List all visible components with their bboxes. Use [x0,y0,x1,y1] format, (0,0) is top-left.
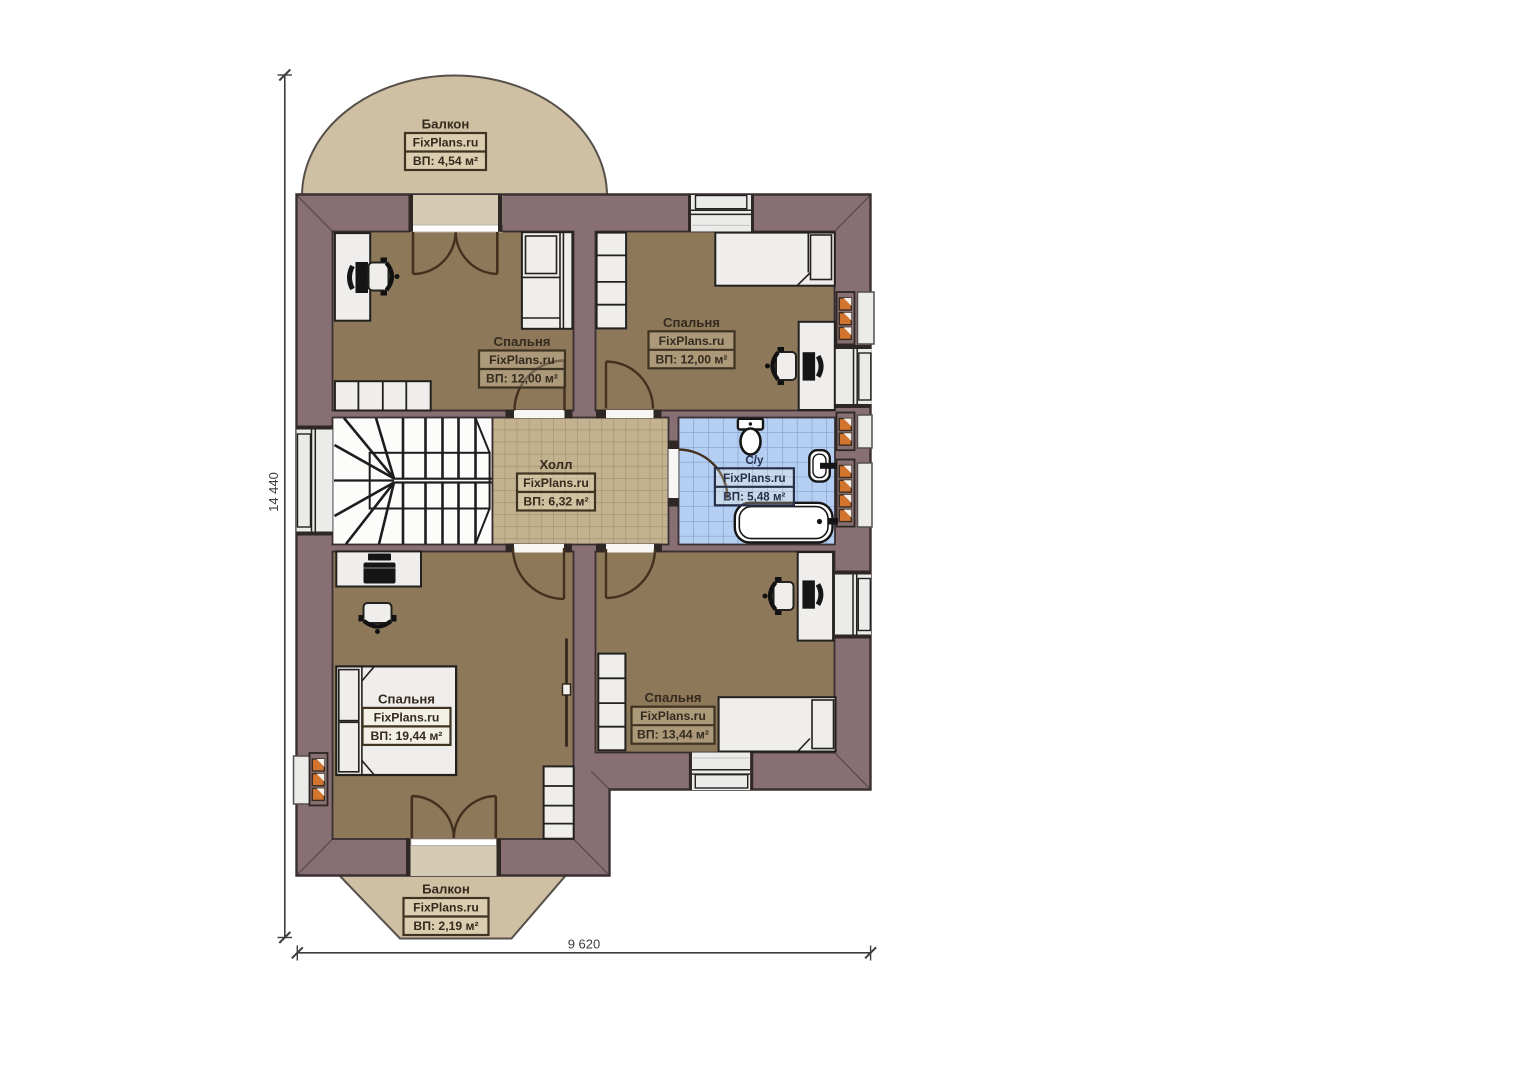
svg-text:Спальня: Спальня [663,315,720,330]
svg-text:14 440: 14 440 [266,472,281,512]
svg-text:ВП: 6,32 м²: ВП: 6,32 м² [523,495,588,509]
svg-text:FixPlans.ru: FixPlans.ru [489,353,555,367]
svg-text:9 620: 9 620 [568,937,601,952]
svg-text:Холл: Холл [539,457,572,472]
svg-text:FixPlans.ru: FixPlans.ru [413,901,479,915]
svg-text:FixPlans.ru: FixPlans.ru [374,710,440,724]
svg-text:Балкон: Балкон [422,117,470,132]
svg-text:Балкон: Балкон [422,882,470,897]
svg-text:Спальня: Спальня [494,334,551,349]
svg-text:ВП: 12,00 м²: ВП: 12,00 м² [486,372,558,386]
svg-text:С/у: С/у [745,454,764,467]
svg-text:ВП: 12,00 м²: ВП: 12,00 м² [656,352,728,366]
svg-text:FixPlans.ru: FixPlans.ru [523,476,589,490]
svg-text:FixPlans.ru: FixPlans.ru [413,136,479,150]
svg-text:FixPlans.ru: FixPlans.ru [640,709,706,723]
svg-text:ВП: 13,44 м²: ВП: 13,44 м² [637,728,709,742]
svg-text:ВП: 4,54 м²: ВП: 4,54 м² [413,154,478,168]
svg-text:ВП: 5,48 м²: ВП: 5,48 м² [723,490,785,503]
svg-text:FixPlans.ru: FixPlans.ru [659,334,725,348]
svg-text:ВП: 2,19 м²: ВП: 2,19 м² [413,919,478,933]
svg-text:FixPlans.ru: FixPlans.ru [723,472,786,485]
svg-text:Спальня: Спальня [378,691,435,706]
svg-text:Спальня: Спальня [645,690,702,705]
svg-text:ВП: 19,44 м²: ВП: 19,44 м² [371,729,443,743]
